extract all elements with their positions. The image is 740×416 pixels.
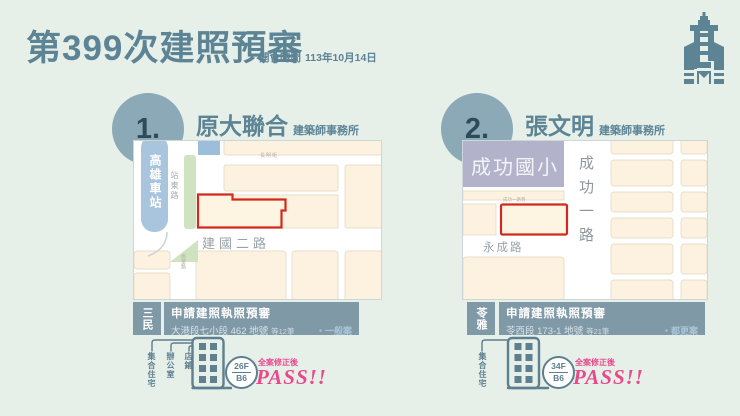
- firm-name: 原大聯合: [196, 113, 288, 139]
- floors-below: B6: [236, 374, 247, 383]
- firm-suffix: 建築師事務所: [599, 125, 665, 137]
- case-2-parcel-outline: [501, 205, 567, 235]
- floors-above: 26F: [234, 362, 249, 371]
- school-block: [463, 141, 564, 187]
- floors-below: B6: [553, 374, 564, 383]
- case-2-section: 2. 張文明建築師事務所: [441, 93, 740, 413]
- case-2-pass-result: PASS!!: [573, 365, 644, 390]
- use-label-office: 辦公室: [166, 352, 175, 379]
- use-label-housing: 集合住宅: [147, 352, 156, 388]
- floors-above: 34F: [551, 362, 566, 371]
- permit-title: 申請建照執照預審: [171, 305, 352, 321]
- case-1-parcel-outline: [198, 195, 286, 228]
- case-2-map: 成功國小 成功一路 成功一路巷 永成路: [462, 140, 708, 300]
- parcel-address: 大港段七小段 462 地號: [171, 323, 268, 337]
- case-2-floors-badge: 34F B6: [542, 356, 575, 389]
- case-2-info-bar: 申請建照執照預審 苓西段 173-1 地號 等21筆 ・都更案: [499, 302, 705, 335]
- case-1-info-bar: 申請建照執照預審 大港段七小段 462 地號 等12筆 ・一般案: [164, 302, 359, 335]
- case-1-firm-name: 原大聯合建築師事務所: [196, 107, 359, 141]
- meeting-date: 113年10月14日: [305, 52, 377, 64]
- case-2-district-badge: 苓雅: [467, 302, 495, 335]
- case-2-map-shapes: [463, 141, 707, 299]
- kaohsiung-85-tower-logo-icon: [680, 12, 728, 95]
- firm-suffix: 建築師事務所: [293, 125, 359, 137]
- parcel-address: 苓西段 173-1 地號: [506, 323, 583, 337]
- firm-name: 張文明: [525, 113, 594, 139]
- permit-title: 申請建照執照預審: [506, 305, 698, 321]
- meeting-time-label: 開會時間: [259, 52, 301, 64]
- use-label-housing: 集合住宅: [478, 352, 487, 388]
- case-2-firm-name: 張文明建築師事務所: [525, 107, 665, 141]
- case-1-floors-badge: 26F B6: [225, 356, 258, 389]
- case-1-pass-result: PASS!!: [256, 365, 327, 390]
- meeting-time: 開會時間113年10月14日: [259, 50, 377, 65]
- use-label-shop: 店鋪: [184, 352, 193, 370]
- case-1-district-badge: 三民: [133, 302, 161, 335]
- case-1-map: 高雄車站 站東路 長明街 建國二路 南華路: [133, 140, 382, 300]
- case-1-section: 1. 原大聯合建築師事務所: [112, 93, 412, 413]
- case-1-map-shapes: [134, 141, 381, 299]
